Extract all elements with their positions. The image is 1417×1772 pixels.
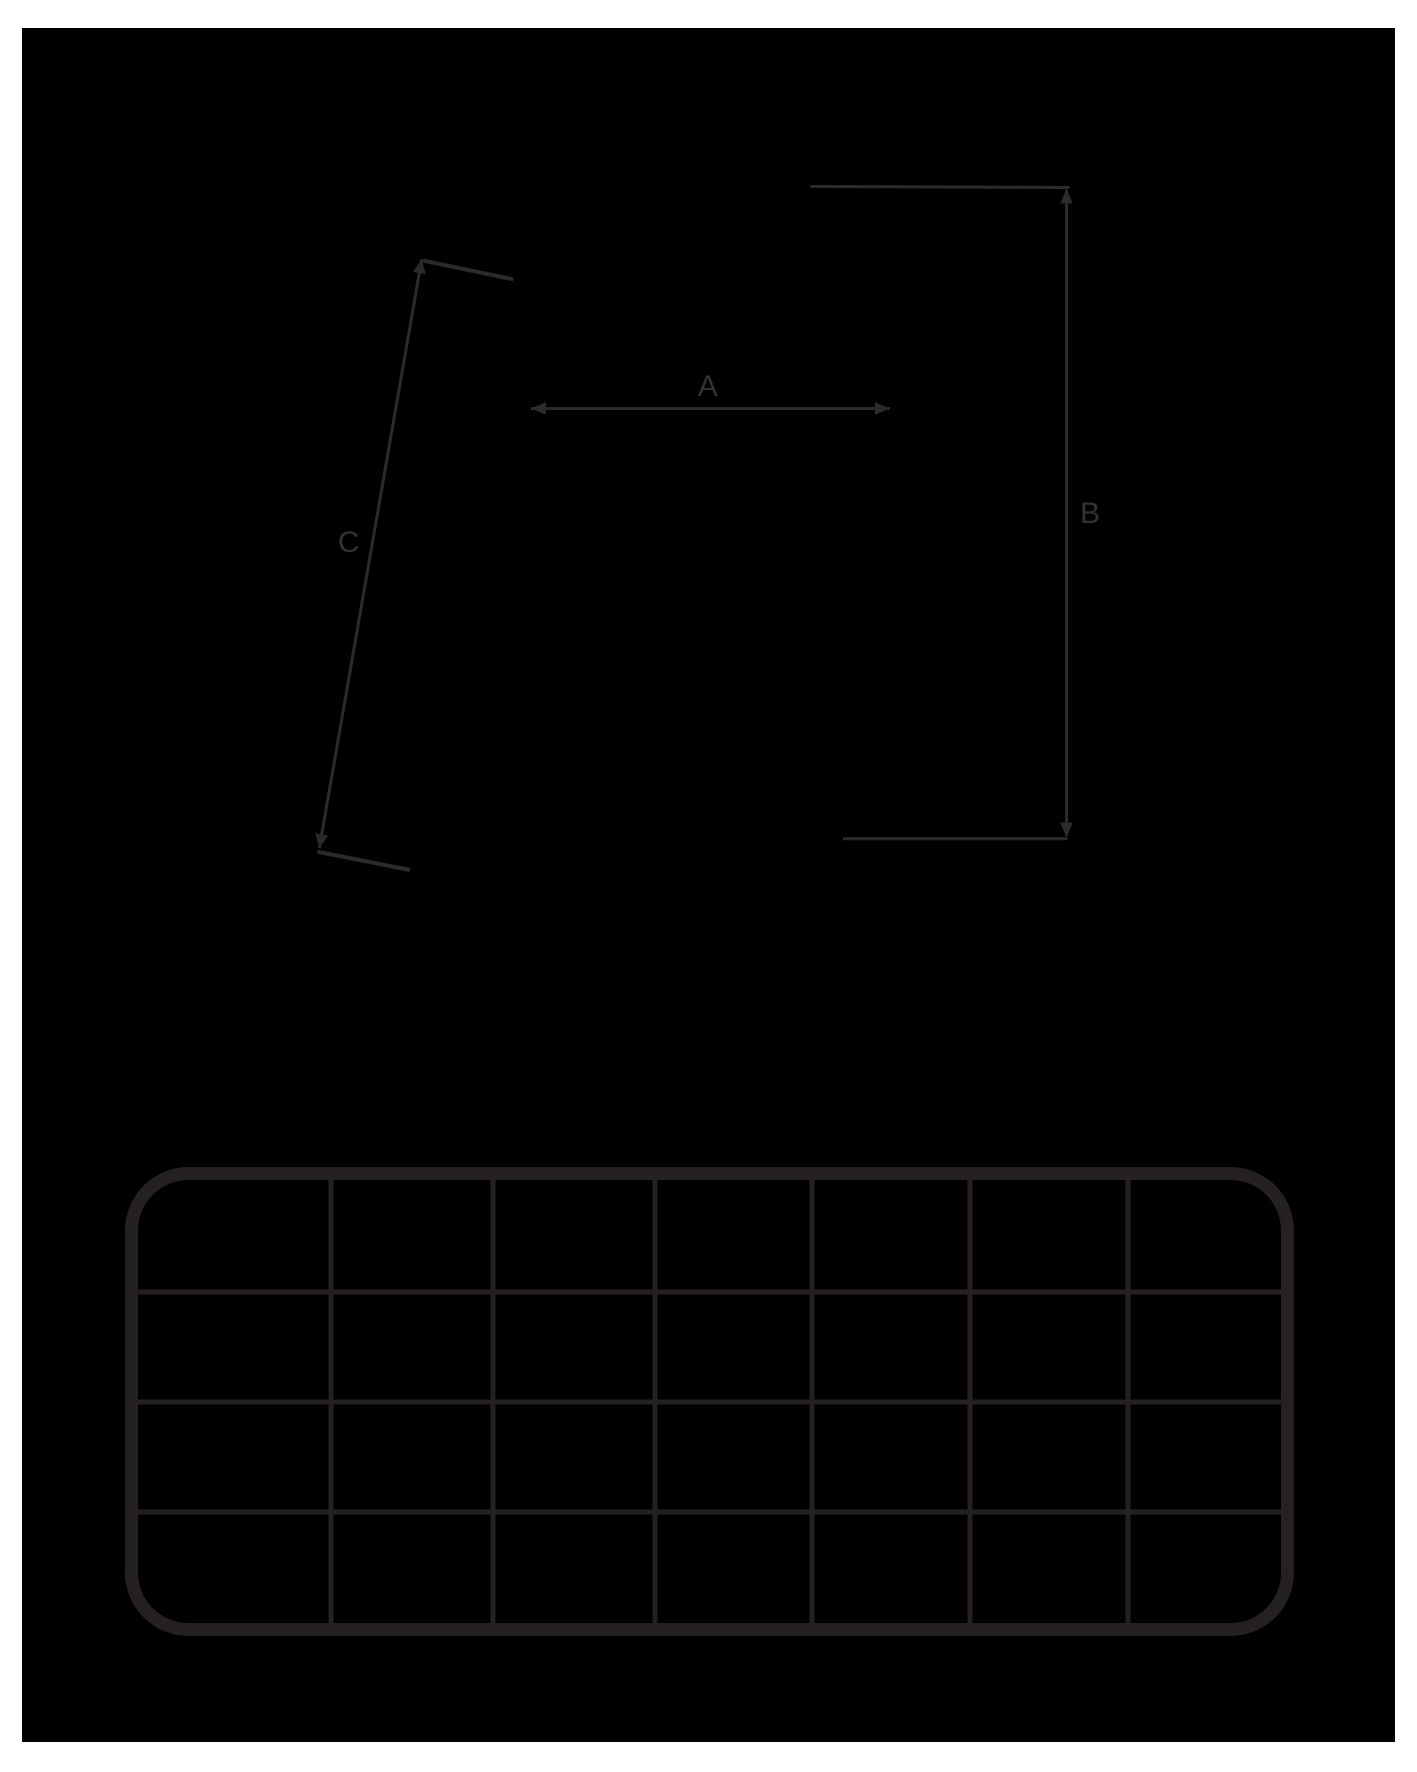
diagram-canvas — [22, 28, 1395, 1742]
dimension-a-label: A — [698, 370, 719, 403]
dimension-b-extension-top — [810, 187, 1070, 188]
dimension-c-label: C — [338, 526, 360, 559]
page: A B C — [0, 0, 1417, 1772]
dimension-b-label: B — [1080, 497, 1101, 530]
dimension-diagram: A B C — [0, 0, 1417, 1772]
